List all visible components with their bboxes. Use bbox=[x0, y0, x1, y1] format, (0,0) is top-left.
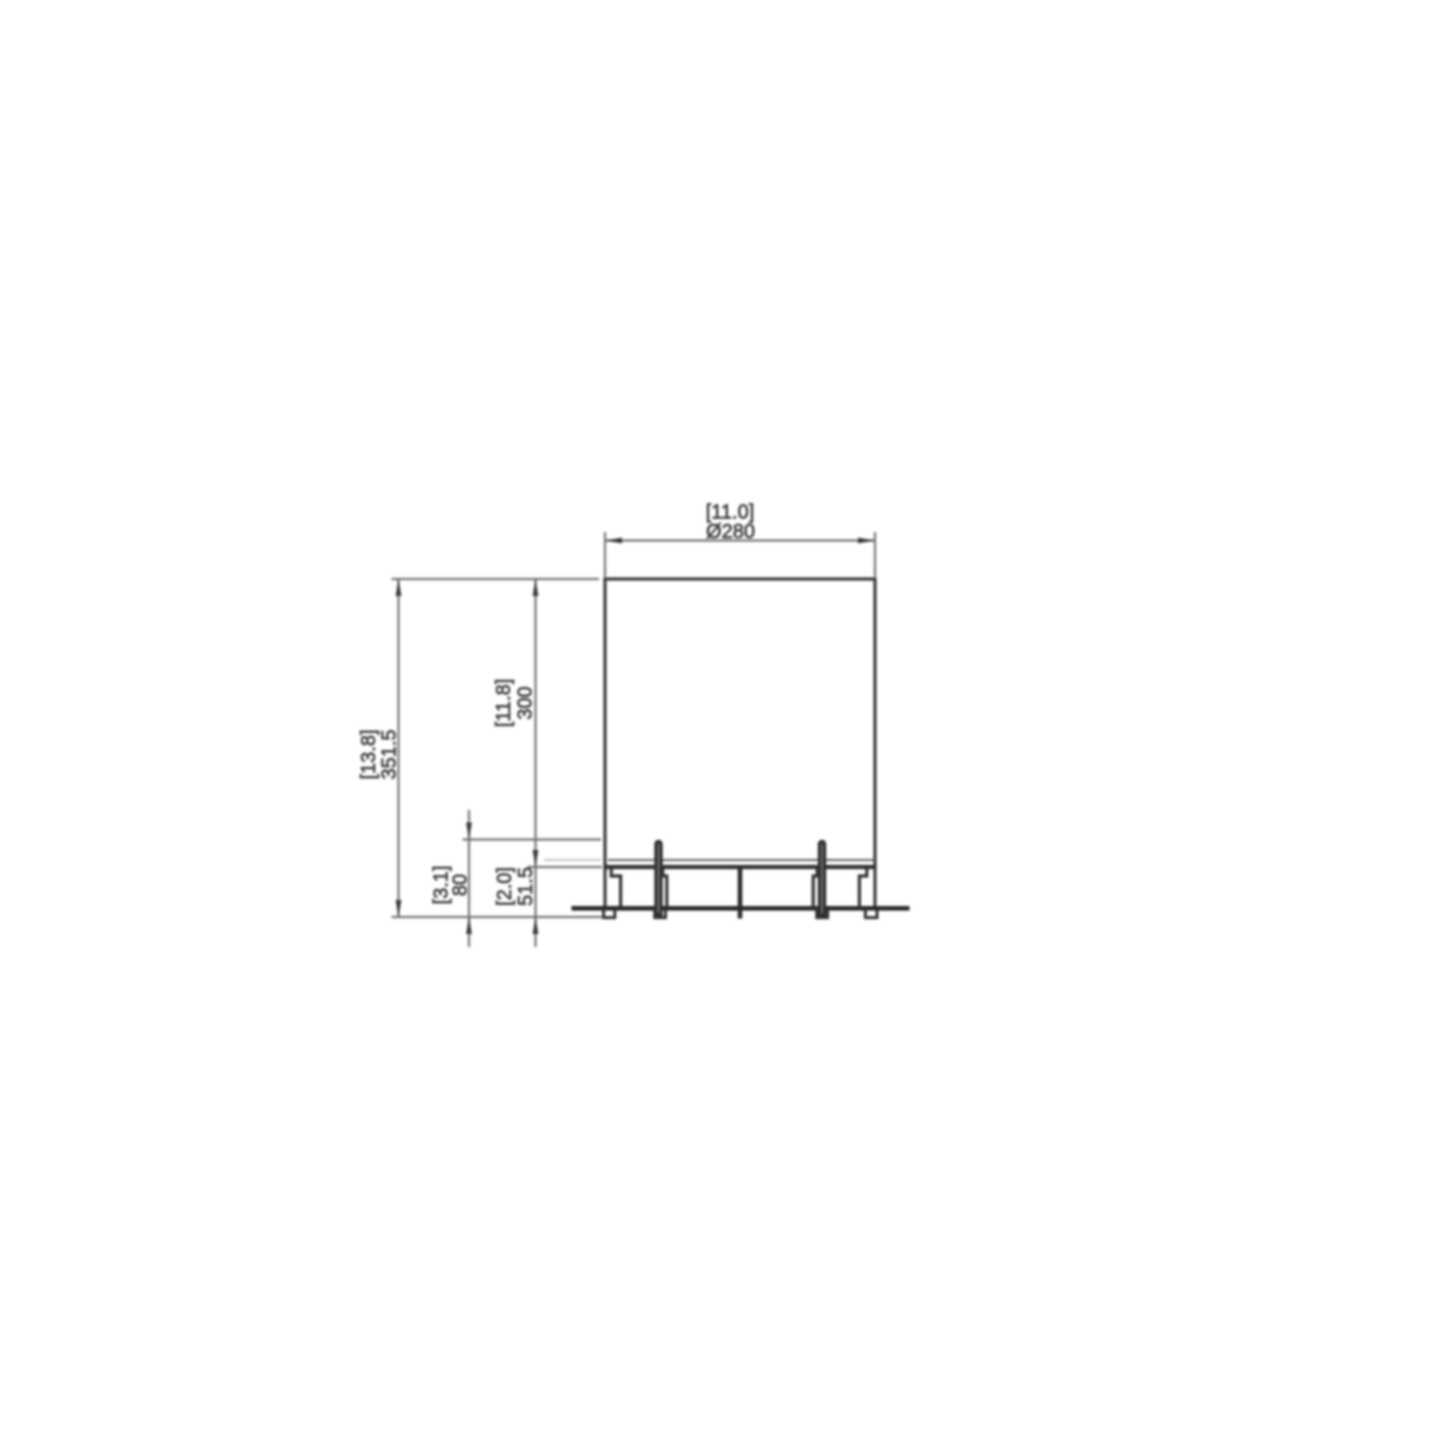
svg-text:[3.1]80: [3.1]80 bbox=[430, 866, 471, 905]
svg-text:[13.8]351.5: [13.8]351.5 bbox=[358, 729, 401, 779]
svg-text:Ø280: Ø280 bbox=[706, 521, 755, 543]
svg-text:[2.0]51.5: [2.0]51.5 bbox=[494, 867, 537, 906]
svg-text:[11.8]300: [11.8]300 bbox=[493, 679, 537, 728]
